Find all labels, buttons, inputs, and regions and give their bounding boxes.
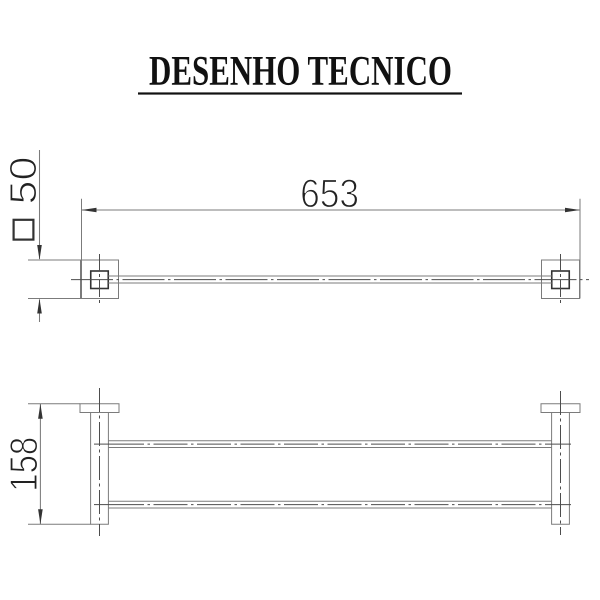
svg-text:DESENHO TECNICO: DESENHO TECNICO (149, 48, 452, 95)
svg-text:158: 158 (3, 437, 46, 492)
svg-text:653: 653 (300, 172, 359, 216)
svg-text:50: 50 (3, 157, 45, 205)
